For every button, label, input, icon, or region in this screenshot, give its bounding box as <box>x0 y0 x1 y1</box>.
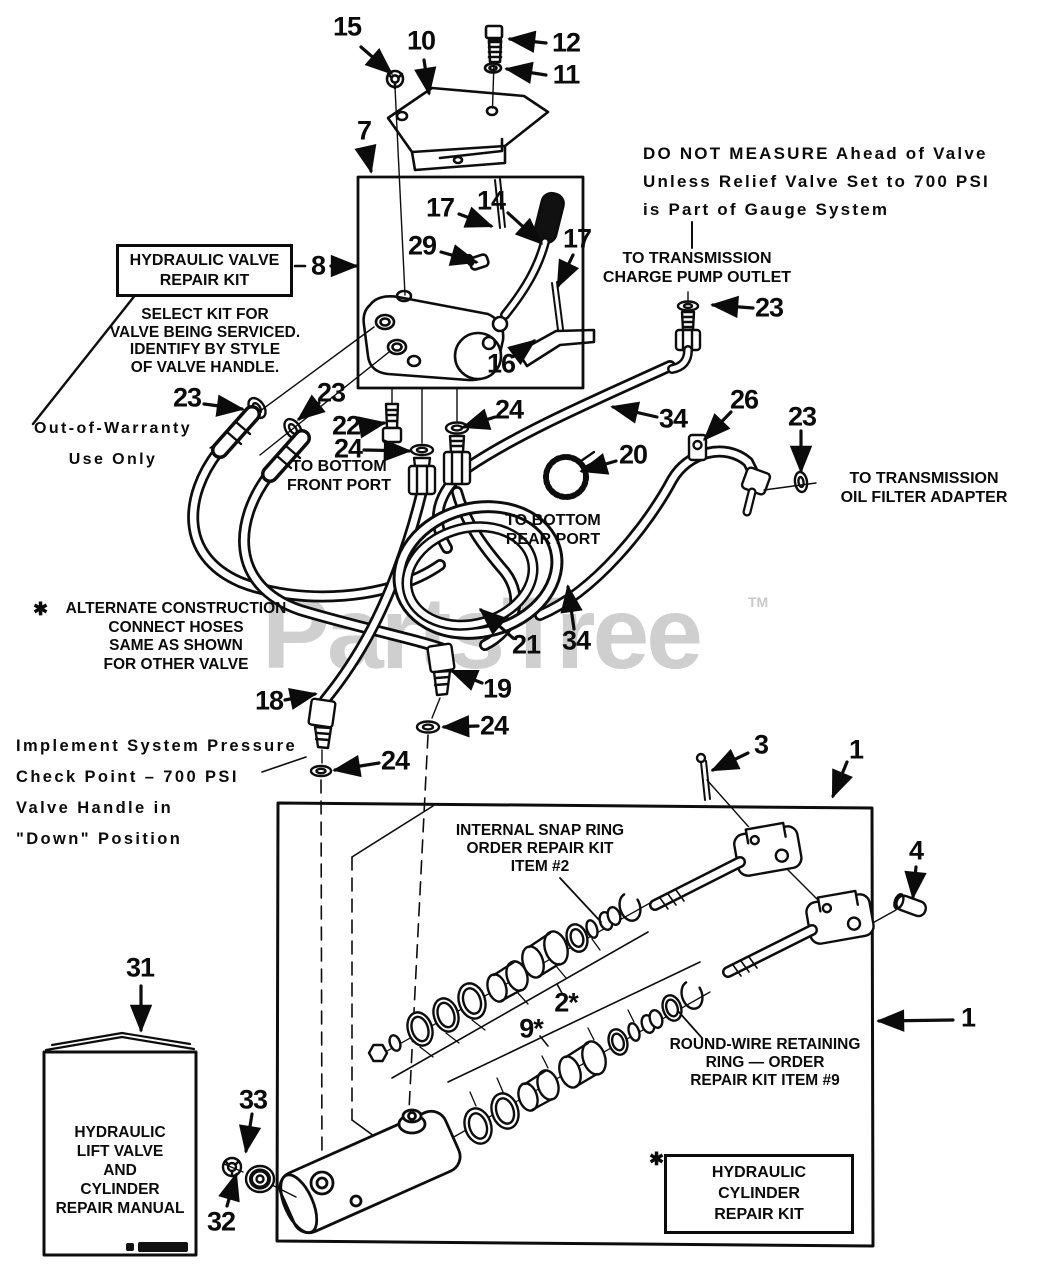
callout-12: 12 <box>552 30 580 57</box>
alternate-line1: ALTERNATE CONSTRUCTION <box>56 600 296 619</box>
round-wire-note: ROUND-WIRE RETAINING RING — ORDER REPAIR… <box>655 1036 875 1090</box>
implement-note: Implement System Pressure Check Point – … <box>16 731 297 855</box>
charge-outlet-line2: CHARGE PUMP OUTLET <box>597 269 797 288</box>
select-kit-line4: OF VALVE HANDLE. <box>95 359 315 377</box>
callout-9-star: 9* <box>519 1016 543 1043</box>
manual-line1: HYDRAULIC <box>48 1123 192 1142</box>
callout-14: 14 <box>477 188 505 215</box>
rear-port-label: TO BOTTOM REAR PORT <box>493 512 613 549</box>
callout-24c: 24 <box>480 713 508 740</box>
warning-line3: is Part of Gauge System <box>643 196 990 224</box>
select-kit-line1: SELECT KIT FOR <box>95 306 315 324</box>
alternate-line3: SAME AS SHOWN <box>56 637 296 656</box>
valve-repair-kit-box: HYDRAULIC VALVE REPAIR KIT <box>116 244 293 297</box>
cylinder-kit-asterisk-icon: ✱ <box>649 1149 664 1170</box>
clevis-rods-art <box>655 754 928 976</box>
valve-kit-line1: HYDRAULIC VALVE <box>119 251 290 271</box>
snap-ring-line1: INTERNAL SNAP RING <box>430 822 650 840</box>
callout-18: 18 <box>255 688 283 715</box>
cyl-kit-line1: HYDRAULIC <box>667 1162 851 1183</box>
manual-line4: CYLINDER <box>48 1180 192 1199</box>
callout-8: 8 <box>311 253 325 280</box>
round-wire-line2: RING — ORDER <box>655 1054 875 1072</box>
front-port-label: TO BOTTOM FRONT PORT <box>279 458 399 495</box>
front-port-line2: FRONT PORT <box>279 477 399 496</box>
valve-kit-line2: REPAIR KIT <box>119 271 290 291</box>
callout-33: 33 <box>239 1087 267 1114</box>
callout-24b: 24 <box>495 397 523 424</box>
snap-ring-line2: ORDER REPAIR KIT <box>430 840 650 858</box>
callout-23b: 23 <box>317 380 345 407</box>
rear-port-line2: REAR PORT <box>493 531 613 550</box>
rear-port-line1: TO BOTTOM <box>493 512 613 531</box>
callout-23a: 23 <box>173 385 201 412</box>
manual-line5: REPAIR MANUAL <box>48 1199 192 1218</box>
select-kit-line2: VALVE BEING SERVICED. <box>95 324 315 342</box>
construction-lines <box>321 735 433 1168</box>
alternate-line4: FOR OTHER VALVE <box>56 656 296 675</box>
round-wire-line1: ROUND-WIRE RETAINING <box>655 1036 875 1054</box>
warranty-line2: Use Only <box>27 444 199 475</box>
callout-1a: 1 <box>849 737 863 764</box>
snap-ring-note: INTERNAL SNAP RING ORDER REPAIR KIT ITEM… <box>430 822 650 876</box>
alternate-note: ALTERNATE CONSTRUCTION CONNECT HOSES SAM… <box>56 600 296 674</box>
warning-note: DO NOT MEASURE Ahead of Valve Unless Rel… <box>643 140 990 224</box>
warning-line1: DO NOT MEASURE Ahead of Valve <box>643 140 990 168</box>
round-wire-leader <box>678 1011 702 1038</box>
parts-diagram-page: PartsTree TM <box>0 0 1038 1280</box>
spring-clamp-art <box>546 452 598 497</box>
callout-20: 20 <box>619 442 647 469</box>
front-port-line1: TO BOTTOM <box>279 458 399 477</box>
callout-23c: 23 <box>755 295 783 322</box>
callout-7: 7 <box>357 118 371 145</box>
warranty-note: Out-of-Warranty Use Only <box>27 413 199 475</box>
snap-ring-leader <box>560 878 601 922</box>
callout-19: 19 <box>483 676 511 703</box>
cyl-kit-line2: CYLINDER <box>667 1183 851 1204</box>
cylinder-barrel-art <box>273 1106 465 1238</box>
callout-11: 11 <box>553 62 580 89</box>
callout-26: 26 <box>730 387 758 414</box>
callout-24d: 24 <box>381 748 409 775</box>
charge-outlet-line1: TO TRANSMISSION <box>597 250 797 269</box>
callout-10: 10 <box>407 28 435 55</box>
callout-2-star: 2* <box>554 990 578 1017</box>
alternate-line2: CONNECT HOSES <box>56 619 296 638</box>
cyl-kit-line3: REPAIR KIT <box>667 1204 851 1225</box>
manual-line2: LIFT VALVE <box>48 1142 192 1161</box>
callout-34b: 34 <box>562 628 590 655</box>
manual-line3: AND <box>48 1161 192 1180</box>
charge-outlet-label: TO TRANSMISSION CHARGE PUMP OUTLET <box>597 250 797 287</box>
warranty-line1: Out-of-Warranty <box>27 413 199 444</box>
charge-outlet-elbow-art <box>672 292 700 369</box>
implement-line3: Valve Handle in <box>16 793 297 824</box>
round-wire-line3: REPAIR KIT ITEM #9 <box>655 1072 875 1090</box>
warning-line2: Unless Relief Valve Set to 700 PSI <box>643 168 990 196</box>
cylinder-repair-kit-box: HYDRAULIC CYLINDER REPAIR KIT <box>664 1154 854 1234</box>
callout-17a: 17 <box>426 195 454 222</box>
callout-3: 3 <box>754 732 768 759</box>
implement-line4: "Down" Position <box>16 824 297 855</box>
callout-32: 32 <box>207 1209 235 1236</box>
callout-34a: 34 <box>659 406 687 433</box>
repair-manual-title: HYDRAULIC LIFT VALVE AND CYLINDER REPAIR… <box>48 1123 192 1218</box>
oil-filter-label: TO TRANSMISSION OIL FILTER ADAPTER <box>834 470 1014 507</box>
manual-logo-icon <box>138 1242 188 1252</box>
manual-logo-square-icon <box>126 1243 134 1251</box>
callout-29: 29 <box>408 233 436 260</box>
snap-ring-line3: ITEM #2 <box>430 858 650 876</box>
oil-filter-elbow-art <box>689 435 816 512</box>
callout-15: 15 <box>333 14 361 41</box>
oil-filter-line1: TO TRANSMISSION <box>834 470 1014 489</box>
callout-23d: 23 <box>788 404 816 431</box>
implement-line1: Implement System Pressure <box>16 731 297 762</box>
callout-21: 21 <box>512 632 540 659</box>
callout-31: 31 <box>126 955 154 982</box>
oil-filter-line2: OIL FILTER ADAPTER <box>834 489 1014 508</box>
callout-1b: 1 <box>961 1005 975 1032</box>
callout-4: 4 <box>909 838 923 865</box>
select-kit-note: SELECT KIT FOR VALVE BEING SERVICED. IDE… <box>95 306 315 376</box>
implement-line2: Check Point – 700 PSI <box>16 762 297 793</box>
callout-17b: 17 <box>563 226 591 253</box>
callout-16: 16 <box>487 351 515 378</box>
alternate-asterisk-icon: ✱ <box>33 599 48 620</box>
select-kit-line3: IDENTIFY BY STYLE <box>95 341 315 359</box>
